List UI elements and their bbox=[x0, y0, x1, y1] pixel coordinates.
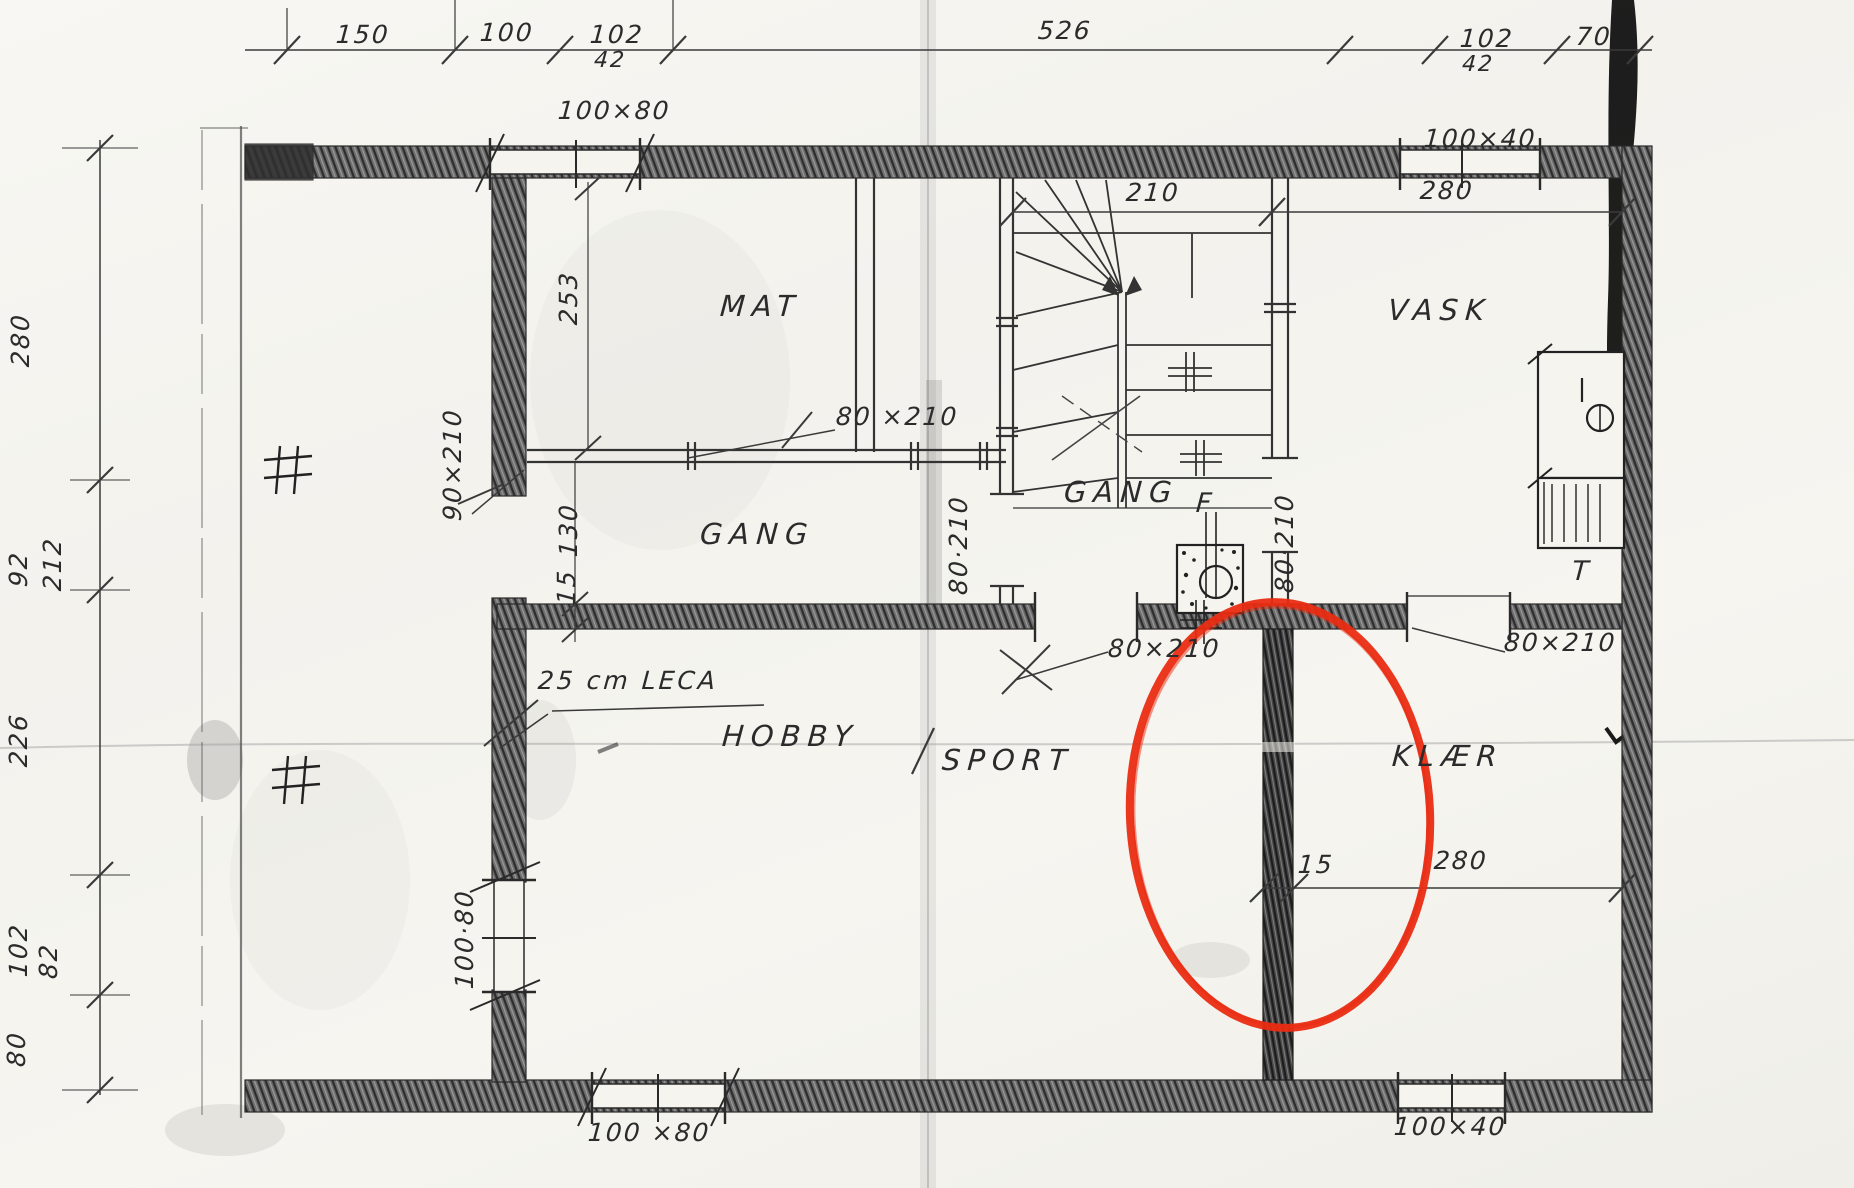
room-label-mat: MAT bbox=[719, 292, 802, 321]
dim-top-102a: 102 bbox=[589, 22, 644, 47]
hatch-marks bbox=[264, 446, 320, 804]
door-label-klaer: 80×210 bbox=[1503, 630, 1617, 655]
dim-left-80: 80 bbox=[4, 1030, 29, 1068]
door-swing bbox=[1052, 396, 1142, 460]
room-label-gang-left: GANG bbox=[699, 520, 816, 549]
window-label-bottom-right: 100×40 bbox=[1393, 1114, 1507, 1139]
drain-hatch-symbol bbox=[1538, 478, 1624, 548]
room-label-gang-center: GANG bbox=[1063, 478, 1180, 507]
door-label-gang: 80·210 bbox=[946, 495, 971, 596]
dim-top-42b: 42 bbox=[1461, 54, 1495, 76]
vask-fixture bbox=[1528, 344, 1624, 488]
door-label-mat: 80 ×210 bbox=[835, 404, 959, 429]
door-label-hobby: 80×210 bbox=[1107, 636, 1221, 661]
room-label-klaer: KLÆR bbox=[1391, 742, 1505, 771]
door-label-vask: 80·210 bbox=[1272, 493, 1297, 594]
dim-left-280: 280 bbox=[8, 312, 33, 367]
dim-mat-253: 253 bbox=[556, 270, 581, 325]
dim-klaer-wall-15: 15 bbox=[1297, 852, 1335, 877]
outer-boundary-left bbox=[200, 126, 248, 1118]
window-label-left: 100·80 bbox=[452, 889, 477, 990]
dim-stair-210: 210 bbox=[1125, 180, 1180, 205]
window-label-top-right: 100×40 bbox=[1423, 126, 1537, 151]
dim-gang-130: 130 bbox=[556, 502, 581, 557]
dim-top-150: 150 bbox=[335, 22, 390, 47]
dim-left-212: 212 bbox=[40, 536, 65, 591]
dim-top-526: 526 bbox=[1037, 18, 1092, 43]
dim-vask-280: 280 bbox=[1419, 178, 1474, 203]
dim-wall-15: 15 bbox=[554, 568, 579, 606]
room-label-sport: SPORT bbox=[941, 746, 1075, 775]
dim-left-82: 82 bbox=[36, 942, 61, 980]
dim-top-42a: 42 bbox=[593, 50, 627, 72]
paper-smudges bbox=[165, 210, 1604, 1156]
floor-plan-linework bbox=[0, 0, 1854, 1188]
dim-left-102: 102 bbox=[6, 922, 31, 977]
highlighted-interior-wall bbox=[1261, 629, 1295, 1080]
note-leca: 25 cm LECA bbox=[537, 668, 719, 693]
window-label-bottom-left: 100 ×80 bbox=[587, 1120, 711, 1145]
dim-left-92: 92 bbox=[6, 550, 31, 588]
dim-top-70: 70 bbox=[1575, 24, 1613, 49]
window-label-top-left: 100×80 bbox=[557, 98, 671, 123]
t-mark-label: T bbox=[1571, 558, 1590, 585]
ink-check-mark bbox=[1606, 728, 1624, 742]
dim-left-226: 226 bbox=[6, 712, 31, 767]
room-label-vask: VASK bbox=[1387, 296, 1492, 325]
staircase bbox=[1013, 180, 1272, 508]
chimney-f-label: F bbox=[1195, 490, 1213, 517]
floor-plan-canvas: 150 100 102 42 526 102 42 70 280 92 212 … bbox=[0, 0, 1854, 1188]
room-label-hobby: HOBBY bbox=[721, 722, 860, 751]
dim-top-100: 100 bbox=[479, 20, 534, 45]
dim-top-102b: 102 bbox=[1459, 26, 1514, 51]
dim-klaer-280: 280 bbox=[1433, 848, 1488, 873]
door-label-left-90x210: 90×210 bbox=[440, 408, 465, 522]
